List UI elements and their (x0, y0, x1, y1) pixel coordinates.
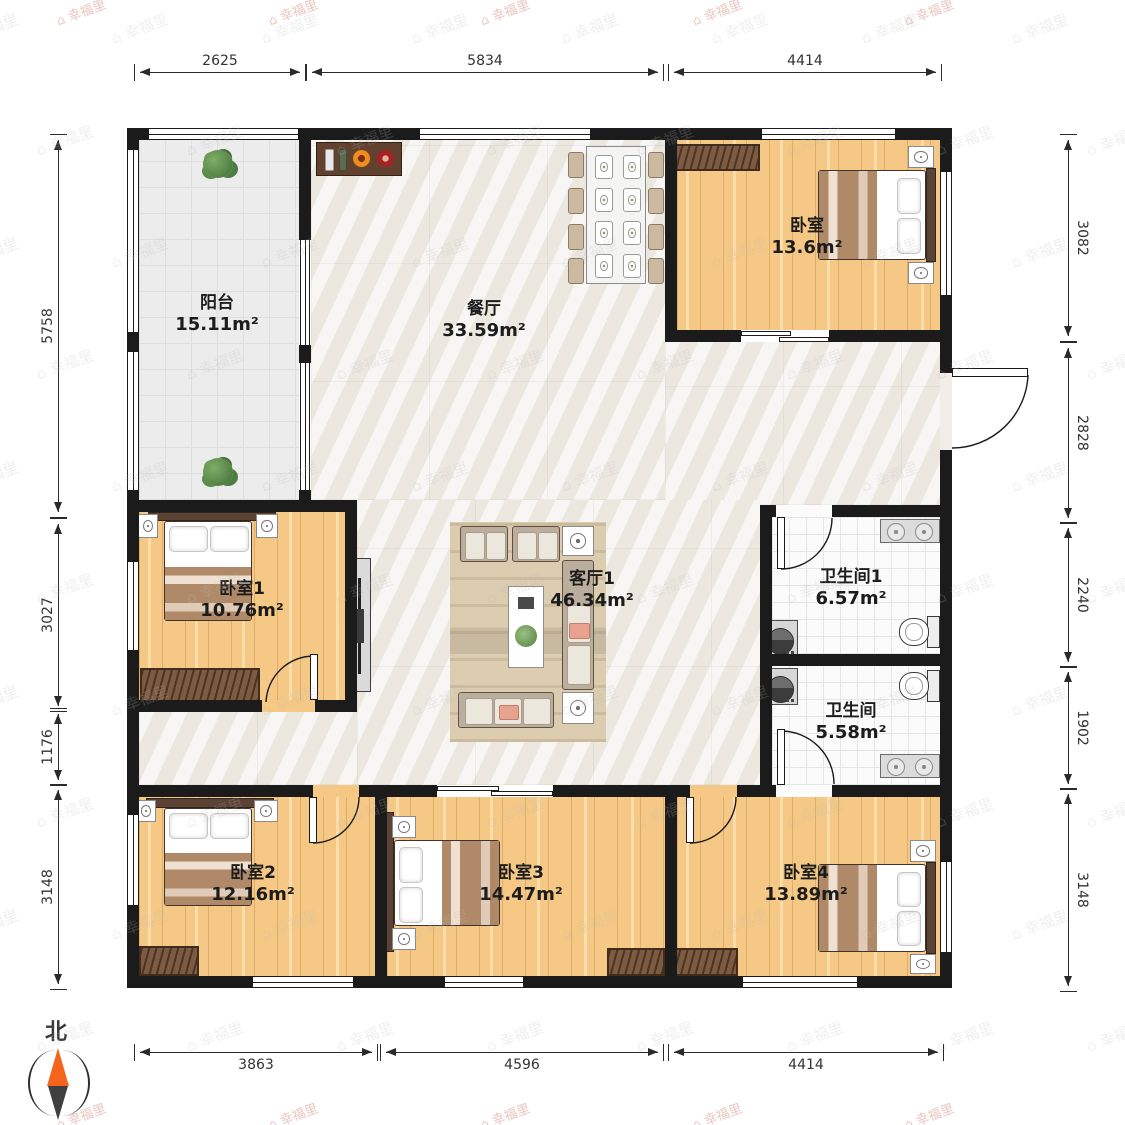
dim-tick (377, 1044, 378, 1061)
wall-bedroom2-3 (375, 797, 387, 976)
dim-value: 2625 (140, 53, 300, 69)
wardrobe (672, 144, 760, 171)
room-name: 阳台 (175, 292, 259, 314)
dim-value: 3148 (40, 869, 56, 905)
watermark-tile: ⌂ 幸福里 (1008, 456, 1071, 496)
wardrobe (139, 946, 199, 976)
pillow (399, 847, 423, 883)
watermark-tile: ⌂ 幸福里 (1083, 344, 1125, 384)
door-leaf (309, 797, 317, 843)
dim-tick (50, 989, 67, 990)
watermark-tile-red: ⌂ 幸福里 (477, 1098, 532, 1125)
chair (568, 258, 584, 284)
plate-icon (595, 188, 613, 212)
wall-bathroom-divider (760, 654, 952, 666)
dim-tick (134, 1044, 135, 1061)
wall-bedroom1-right (345, 500, 357, 712)
chair (648, 152, 664, 178)
cushion (486, 532, 506, 560)
room-area: 5.58m² (815, 722, 886, 745)
dim-value: 3082 (1074, 220, 1090, 256)
window (127, 150, 139, 332)
dim-right-1: 3082 (1068, 140, 1069, 336)
watermark-tile: ⌂ 幸福里 (1008, 8, 1071, 48)
room-label-bedroom3: 卧室3 14.47m² (479, 862, 563, 907)
dim-value: 2240 (1074, 577, 1090, 613)
pillow (897, 872, 921, 907)
dim-bottom-2: 4596 (386, 1052, 658, 1053)
room-area: 12.16m² (211, 884, 295, 907)
cushion (567, 645, 591, 685)
room-area: 13.6m² (771, 237, 842, 260)
room-name: 卫生间 (815, 700, 886, 722)
watermark-tile: ⌂ 幸福里 (408, 8, 471, 48)
nightstand (256, 514, 278, 538)
nightstand (138, 514, 158, 538)
dim-tick (1060, 134, 1077, 135)
toilet-bowl (899, 618, 929, 646)
watermark-tile: ⌂ 幸福里 (558, 8, 621, 48)
sink-icon (915, 758, 933, 776)
nightstand (392, 928, 416, 950)
orange-lamp-icon (353, 150, 370, 167)
wall-bedroom-top-left (665, 140, 677, 342)
sliding-door-panel (741, 331, 791, 336)
watermark-tile: ⌂ 幸福里 (1008, 232, 1071, 272)
pillow (169, 526, 208, 552)
watermark-tile: ⌂ 幸福里 (0, 680, 21, 720)
door-leaf (310, 654, 318, 700)
entry-door-leaf (952, 368, 1028, 377)
wall-balcony-divider (299, 140, 311, 240)
sideboard (316, 142, 402, 176)
dim-value: 1176 (40, 729, 56, 765)
watermark-tile: ⌂ 幸福里 (0, 8, 21, 48)
wardrobe (140, 668, 260, 702)
dim-tick (50, 711, 67, 712)
entry-floor (665, 342, 940, 505)
room-area: 46.34m² (550, 590, 634, 613)
watermark-tile-red: ⌂ 幸福里 (689, 1098, 744, 1125)
bed-headboard (926, 168, 936, 262)
dim-value: 5834 (312, 53, 658, 69)
side-table-lamp (562, 692, 594, 724)
pillow (499, 705, 519, 720)
sofa (458, 692, 554, 728)
window (127, 352, 139, 490)
chair (568, 188, 584, 214)
dim-tick (1060, 522, 1077, 523)
double-sink-vanity (880, 754, 940, 778)
room-area: 33.59m² (442, 320, 526, 343)
pillow (897, 178, 921, 214)
room-name: 卧室3 (479, 862, 563, 884)
watermark-tile: ⌂ 幸福里 (783, 1016, 846, 1056)
room-label-living: 客厅1 46.34m² (550, 568, 634, 613)
window (149, 128, 298, 140)
room-label-bedroom2: 卧室2 12.16m² (211, 862, 295, 907)
sliding-door-panel (491, 791, 553, 796)
dim-top-2: 5834 (312, 72, 658, 73)
dim-left-1: 5758 (58, 140, 59, 512)
chair (568, 152, 584, 178)
compass-north-label: 北 (45, 1014, 67, 1046)
plate-icon (623, 155, 641, 179)
door-opening (776, 785, 832, 797)
dim-value: 1902 (1074, 710, 1090, 746)
pillow (897, 218, 921, 254)
watermark-tile-red: ⌂ 幸福里 (265, 1098, 320, 1125)
plate-icon (595, 254, 613, 278)
cushion (465, 698, 493, 725)
dim-tick (50, 134, 67, 135)
watermark-tile: ⌂ 幸福里 (33, 120, 96, 160)
window (420, 128, 590, 140)
nightstand (908, 262, 934, 284)
room-area: 15.11m² (175, 314, 259, 337)
room-name: 卫生间1 (815, 566, 886, 588)
dim-right-5: 3148 (1068, 794, 1069, 986)
watermark-tile: ⌂ 幸福里 (708, 8, 771, 48)
bottle-icon (325, 149, 334, 171)
dim-value: 3863 (140, 1057, 372, 1073)
flowers-icon (515, 625, 537, 647)
dim-value: 4596 (386, 1057, 658, 1073)
dim-tick (50, 518, 67, 519)
window (127, 562, 139, 650)
compass-needle-north-icon (47, 1048, 69, 1086)
red-lamp-icon (377, 150, 394, 167)
dim-tick (1060, 991, 1077, 992)
double-sink-vanity (880, 519, 940, 543)
watermark-tile: ⌂ 幸福里 (1083, 120, 1125, 160)
plate-icon (595, 155, 613, 179)
dim-tick (1060, 342, 1077, 343)
dim-left-4: 3148 (58, 790, 59, 984)
coffee-table (508, 586, 544, 668)
door-opening (313, 785, 359, 797)
watermark-tile: ⌂ 幸福里 (33, 344, 96, 384)
dim-value: 3148 (1074, 872, 1090, 908)
watermark-tile: ⌂ 幸福里 (858, 8, 921, 48)
nightstand (254, 800, 278, 822)
watermark-tile: ⌂ 幸福里 (483, 1016, 546, 1056)
entry-door-opening (940, 373, 952, 450)
watermark-tile: ⌂ 幸福里 (1008, 904, 1071, 944)
watermark-tile-red: ⌂ 幸福里 (689, 0, 744, 29)
floorplan: 阳台 15.11m² 餐厅 33.59m² 卧室 13.6m² 卧室1 10.7… (0, 0, 1125, 1125)
wall-balcony-post (299, 345, 311, 363)
book-icon (518, 597, 534, 609)
cushion (523, 698, 551, 725)
pillow (210, 526, 249, 552)
dining-table (586, 146, 646, 284)
door-leaf (777, 729, 785, 785)
loveseat (512, 526, 560, 562)
wall-bathroom-left (760, 505, 772, 797)
dim-value: 4414 (674, 1057, 938, 1073)
plant-icon (203, 458, 233, 486)
dim-value: 2828 (1074, 415, 1090, 451)
watermark-tile-red: ⌂ 幸福里 (901, 0, 956, 29)
dim-right-3: 2240 (1068, 528, 1069, 662)
toilet (898, 614, 940, 648)
dim-tick (663, 1044, 664, 1061)
dim-tick (668, 64, 669, 81)
dim-tick (50, 708, 67, 709)
dim-top-3: 4414 (674, 72, 936, 73)
toilet (898, 668, 940, 702)
dim-left-2: 3027 (58, 524, 59, 706)
toilet-bowl (899, 672, 929, 700)
pillow (569, 623, 590, 639)
room-name: 客厅1 (550, 568, 634, 590)
sink-icon (915, 523, 933, 541)
room-name: 餐厅 (442, 298, 526, 320)
room-area: 14.47m² (479, 884, 563, 907)
dim-value: 4414 (674, 53, 936, 69)
dim-tick (134, 64, 135, 81)
door-opening (776, 505, 832, 517)
pillow (169, 813, 208, 839)
cushion (538, 532, 558, 560)
watermark-tile-red: ⌂ 幸福里 (901, 1098, 956, 1125)
room-name: 卧室2 (211, 862, 295, 884)
room-name: 卧室4 (764, 862, 848, 884)
dim-tick (306, 64, 307, 81)
dim-tick (1060, 666, 1077, 667)
sliding-door-panel (437, 786, 499, 791)
window (127, 815, 139, 905)
bed-headboard (926, 862, 936, 954)
watermark-tile: ⌂ 幸福里 (1083, 1016, 1125, 1056)
compass-needle-south-icon (48, 1086, 68, 1120)
sliding-door-panel (779, 337, 829, 342)
dim-value: 5758 (40, 308, 56, 344)
door-leaf (686, 797, 694, 843)
dim-tick (943, 1044, 944, 1061)
nightstand (910, 840, 936, 862)
wardrobe (607, 948, 665, 976)
watermark-tile: ⌂ 幸福里 (183, 1016, 246, 1056)
wardrobe (670, 948, 738, 976)
chair (568, 224, 584, 250)
watermark-tile: ⌂ 幸福里 (258, 8, 321, 48)
watermark-tile: ⌂ 幸福里 (0, 232, 21, 272)
pillow (897, 911, 921, 946)
room-label-bathroom2: 卫生间 5.58m² (815, 700, 886, 745)
dim-left-3: 1176 (58, 714, 59, 780)
dim-top-1: 2625 (140, 72, 300, 73)
room-name: 卧室1 (200, 578, 284, 600)
watermark-tile: ⌂ 幸福里 (1008, 680, 1071, 720)
watermark-tile: ⌂ 幸福里 (33, 792, 96, 832)
window (445, 976, 523, 988)
room-label-bedroom1: 卧室1 10.76m² (200, 578, 284, 623)
wall-bedroom3-4 (665, 797, 677, 976)
door-opening (690, 785, 737, 797)
room-name: 卧室 (771, 215, 842, 237)
nightstand (136, 800, 156, 822)
pillow (210, 813, 249, 839)
hallway-floor (139, 712, 357, 785)
window (253, 976, 353, 988)
plate-icon (623, 254, 641, 278)
sink-icon (887, 523, 905, 541)
nightstand (910, 954, 936, 974)
side-table-lamp (562, 526, 594, 556)
loveseat (460, 526, 508, 562)
door-leaf (777, 517, 785, 569)
plate-icon (623, 221, 641, 245)
watermark-tile: ⌂ 幸福里 (1083, 792, 1125, 832)
window (940, 862, 952, 952)
chair (648, 258, 664, 284)
dim-tick (1060, 788, 1077, 789)
dim-tick (50, 784, 67, 785)
watermark-tile-red: ⌂ 幸福里 (53, 0, 108, 29)
window (743, 976, 857, 988)
plate-icon (623, 188, 641, 212)
dim-bottom-1: 3863 (140, 1052, 372, 1053)
dim-tick (380, 1044, 381, 1061)
dim-tick (941, 64, 942, 81)
plate-icon (595, 221, 613, 245)
wall-bedroom1-top (127, 500, 357, 512)
room-label-dining: 餐厅 33.59m² (442, 298, 526, 343)
dim-right-2: 2828 (1068, 348, 1069, 518)
cushion (517, 532, 537, 560)
pillow (399, 887, 423, 923)
watermark-tile-red: ⌂ 幸福里 (477, 0, 532, 29)
sink-icon (887, 758, 905, 776)
wall-bedroom1-bottom (127, 700, 357, 712)
watermark-tile: ⌂ 幸福里 (633, 1016, 696, 1056)
plant-icon (203, 150, 233, 178)
room-label-bedroom-top: 卧室 13.6m² (771, 215, 842, 260)
chair (648, 188, 664, 214)
window (940, 172, 952, 295)
window (300, 363, 310, 490)
watermark-tile: ⌂ 幸福里 (0, 456, 21, 496)
cushion (465, 532, 485, 560)
dim-tick (668, 1044, 669, 1061)
window (300, 240, 310, 345)
watermark-tile: ⌂ 幸福里 (0, 904, 21, 944)
nightstand (908, 146, 934, 168)
door-opening (262, 700, 315, 712)
room-label-bathroom1: 卫生间1 6.57m² (815, 566, 886, 611)
bottle-icon (339, 149, 347, 171)
watermark-tile: ⌂ 幸福里 (108, 8, 171, 48)
room-label-balcony: 阳台 15.11m² (175, 292, 259, 337)
room-label-bedroom4: 卧室4 13.89m² (764, 862, 848, 907)
dim-value: 3027 (40, 597, 56, 633)
room-area: 6.57m² (815, 588, 886, 611)
watermark-tile-red: ⌂ 幸福里 (265, 0, 320, 29)
dim-tick (663, 64, 664, 81)
room-area: 10.76m² (200, 600, 284, 623)
chair (648, 224, 664, 250)
nightstand (392, 816, 416, 838)
room-area: 13.89m² (764, 884, 848, 907)
window (762, 128, 895, 140)
dim-bottom-3: 4414 (674, 1052, 938, 1053)
dim-right-4: 1902 (1068, 672, 1069, 784)
